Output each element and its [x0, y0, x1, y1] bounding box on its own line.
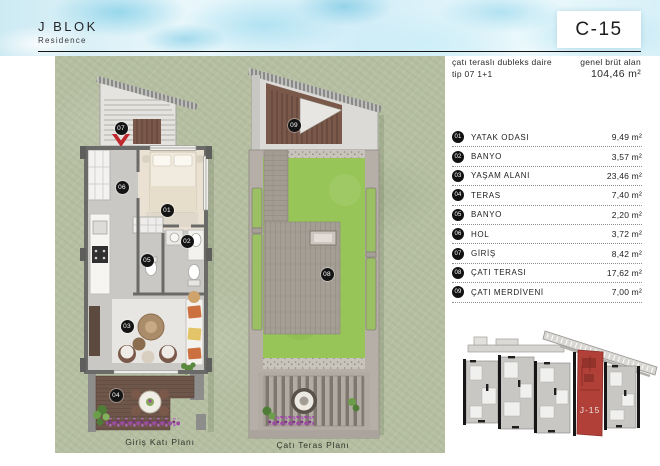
room-label: TERAS	[471, 191, 612, 200]
room-row: 06 HOL 3,72 m²	[452, 225, 642, 244]
room-row: 02 BANYO 3,57 m²	[452, 147, 642, 166]
room-label: ÇATI TERASI	[471, 268, 607, 277]
badge-room-01: 01	[161, 204, 174, 217]
room-area-value: 2,20 m²	[612, 210, 642, 220]
room-table: 01 YATAK ODASI 9,49 m² 02 BANYO 3,57 m² …	[452, 128, 642, 303]
roof-pergola	[249, 372, 379, 438]
header-divider	[38, 51, 641, 52]
unit-type-label: çatı teraslı dubleks daire	[452, 57, 552, 69]
room-area-value: 3,57 m²	[612, 152, 642, 162]
room-number-badge: 02	[452, 151, 464, 163]
room-label: HOL	[471, 230, 612, 239]
badge-room-03: 03	[121, 320, 134, 333]
badge-room-06: 06	[116, 181, 129, 194]
kitchen-counter	[90, 214, 110, 294]
room-label: BANYO	[471, 210, 612, 219]
gross-area-value: 104,46 m²	[580, 68, 641, 80]
roof-terrace-plan	[248, 68, 384, 438]
room-number-badge: 09	[452, 286, 464, 298]
roof-plan-caption: Çatı Teras Planı	[243, 440, 383, 450]
room-label: YATAK ODASI	[471, 133, 612, 142]
badge-room-02: 02	[181, 235, 194, 248]
unit-code-box: C-15	[557, 11, 641, 48]
room-area-value: 7,00 m²	[612, 287, 642, 297]
room-row: 05 BANYO 2,20 m²	[452, 206, 642, 225]
room-label: GİRİŞ	[471, 249, 612, 258]
ground-plan-caption: Giriş Katı Planı	[90, 437, 230, 447]
bed	[142, 152, 204, 212]
room-label: ÇATI MERDİVENİ	[471, 288, 612, 297]
site-plan-units	[466, 356, 636, 433]
unit-type-code: tip 07 1+1	[452, 69, 552, 81]
room-row: 01 YATAK ODASI 9,49 m²	[452, 128, 642, 147]
room-number-badge: 01	[452, 131, 464, 143]
floorplan-brochure-page: { "header": { "project": "J BLOK", "proj…	[0, 0, 660, 466]
badge-room-07: 07	[115, 122, 128, 135]
highlighted-unit-label: J-15	[580, 405, 601, 415]
room-row: 09 ÇATI MERDİVENİ 7,00 m²	[452, 283, 642, 302]
ground-terrace	[88, 374, 206, 432]
badge-room-09: 09	[288, 119, 301, 132]
room-area-value: 9,49 m²	[612, 132, 642, 142]
room-number-badge: 07	[452, 248, 464, 260]
badge-room-08: 08	[321, 268, 334, 281]
room-number-badge: 08	[452, 267, 464, 279]
unit-area-info: genel brüt alan 104,46 m²	[580, 57, 641, 80]
highlighted-unit: J-15	[577, 350, 603, 436]
room-area-value: 8,42 m²	[612, 249, 642, 259]
room-row: 04 TERAS 7,40 m²	[452, 186, 642, 205]
room-number-badge: 03	[452, 170, 464, 182]
brand: J BLOK Residence	[38, 19, 98, 45]
room-row: 03 YAŞAM ALANI 23,46 m²	[452, 167, 642, 186]
project-title: J BLOK	[38, 19, 98, 34]
room-number-badge: 05	[452, 209, 464, 221]
project-subtitle: Residence	[38, 36, 98, 45]
room-area-value: 17,62 m²	[607, 268, 642, 278]
badge-room-04: 04	[110, 389, 123, 402]
room-number-badge: 06	[452, 228, 464, 240]
unit-type-info: çatı teraslı dubleks daire tip 07 1+1	[452, 57, 552, 80]
gross-area-label: genel brüt alan	[580, 57, 641, 67]
room-row: 08 ÇATI TERASI 17,62 m²	[452, 264, 642, 283]
room-label: BANYO	[471, 152, 612, 161]
badge-room-05: 05	[141, 254, 154, 267]
room-number-badge: 04	[452, 189, 464, 201]
room-label: YAŞAM ALANI	[471, 171, 607, 180]
room-area-value: 3,72 m²	[612, 229, 642, 239]
room-area-value: 23,46 m²	[607, 171, 642, 181]
site-key-plan: J-15	[448, 326, 658, 450]
room-row: 07 GİRİŞ 8,42 m²	[452, 244, 642, 263]
room-area-value: 7,40 m²	[612, 190, 642, 200]
